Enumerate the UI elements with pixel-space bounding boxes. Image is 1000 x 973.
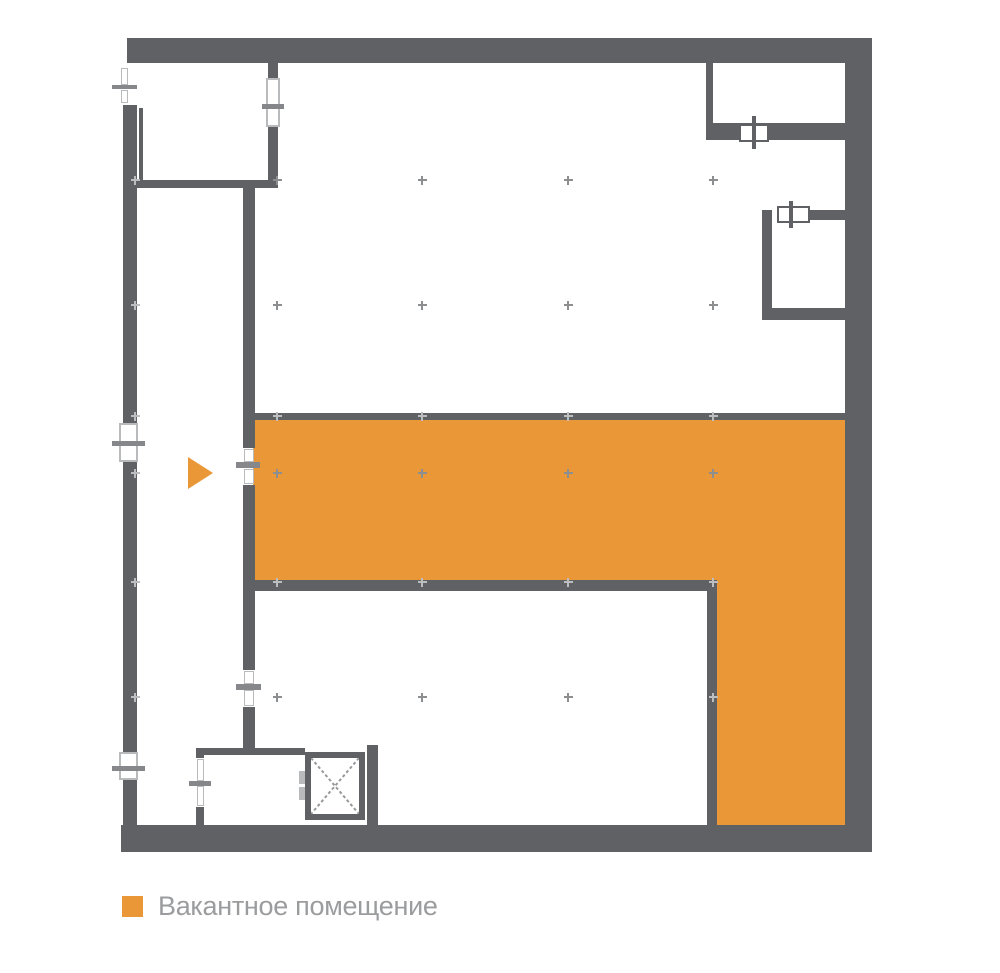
- grid-cross-marker: [564, 693, 573, 702]
- elevator-x-icon: [311, 758, 359, 814]
- grid-cross-marker: [709, 578, 718, 587]
- window-tick-room-bottom: [189, 781, 211, 786]
- door-symbol-interior-lower-b: [244, 690, 254, 706]
- door-tick-topright1: [752, 116, 756, 149]
- grid-cross-marker: [709, 693, 718, 702]
- room-topright2-left-wall: [762, 210, 772, 320]
- grid-cross-marker: [418, 412, 427, 421]
- vacant-area-leg[interactable]: [717, 580, 845, 825]
- grid-cross-marker: [418, 301, 427, 310]
- elevator-shaft: [305, 752, 365, 820]
- grid-cross-marker: [418, 469, 427, 478]
- door-symbol-topright2: [777, 206, 810, 223]
- grid-cross-marker: [131, 176, 140, 185]
- elevator-door-tick-b: [299, 787, 305, 800]
- grid-cross-marker: [564, 176, 573, 185]
- door-tick-topright2: [789, 201, 793, 228]
- grid-cross-marker: [564, 578, 573, 587]
- grid-cross-marker: [709, 176, 718, 185]
- grid-cross-marker: [709, 301, 718, 310]
- elevator-door-tick-a: [299, 771, 305, 784]
- window-tick-left-bottom: [112, 766, 145, 771]
- interior-wall-middle: [243, 485, 255, 670]
- vacant-area-leg-border-left: [707, 580, 717, 825]
- interior-wall-lower: [243, 707, 255, 750]
- grid-cross-marker: [273, 578, 282, 587]
- vacant-area-band[interactable]: [253, 420, 845, 580]
- window-symbol-room-topleft: [266, 78, 280, 127]
- wall-right: [845, 38, 872, 852]
- room-bottom-top-wall: [196, 748, 305, 755]
- room-topleft-right-wall-lower: [268, 127, 278, 180]
- wall-left-upper: [123, 105, 137, 423]
- room-topleft-bottom-wall: [137, 180, 278, 188]
- legend-label-vacant: Вакантное помещение: [158, 891, 438, 922]
- wall-top: [127, 38, 872, 63]
- grid-cross-marker: [273, 412, 282, 421]
- wall-left-lower: [123, 780, 137, 825]
- grid-cross-marker: [273, 693, 282, 702]
- room-bottom-left-wall-lower: [196, 807, 204, 825]
- room-topleft-inner-wall: [139, 108, 143, 183]
- grid-cross-marker: [273, 301, 282, 310]
- door-tick-interior-upper: [236, 462, 260, 468]
- grid-cross-marker: [418, 176, 427, 185]
- window-tick-left-middle: [112, 441, 145, 446]
- window-symbol-room-bottom-b: [197, 786, 204, 806]
- vacant-area-border-top: [243, 413, 845, 420]
- room-topright2-bottom-wall: [762, 308, 845, 320]
- grid-cross-marker: [131, 469, 140, 478]
- door-tick-interior-lower: [236, 684, 261, 690]
- grid-cross-marker: [418, 578, 427, 587]
- room-topleft-right-wall-upper: [268, 63, 278, 78]
- floor-plan-page: Вакантное помещение: [0, 0, 1000, 973]
- room-topright2-top-wall: [810, 210, 845, 220]
- room-bottom-left-wall-upper: [196, 748, 204, 758]
- grid-cross-marker: [564, 412, 573, 421]
- legend-swatch-vacant: [122, 896, 143, 917]
- vacant-area-border-bottom: [243, 580, 717, 591]
- window-symbol-left-top-b: [121, 90, 128, 103]
- grid-cross-marker: [131, 412, 140, 421]
- wall-left-middle: [123, 462, 137, 752]
- wall-right-of-elevator: [367, 745, 378, 825]
- grid-cross-marker: [131, 578, 140, 587]
- grid-cross-marker: [709, 412, 718, 421]
- floor-plan: [0, 0, 1000, 880]
- grid-cross-marker: [131, 693, 140, 702]
- grid-cross-marker: [273, 469, 282, 478]
- grid-cross-marker: [131, 301, 140, 310]
- legend: Вакантное помещение: [122, 891, 438, 922]
- entrance-arrow-icon: [188, 457, 213, 489]
- door-symbol-interior-upper-a: [244, 449, 254, 462]
- room-topright1-bottom-wall: [706, 123, 845, 140]
- grid-cross-marker: [564, 469, 573, 478]
- window-tick-room-topleft: [262, 104, 284, 109]
- window-symbol-room-bottom-a: [197, 759, 204, 781]
- grid-cross-marker: [418, 693, 427, 702]
- grid-cross-marker: [273, 176, 282, 185]
- interior-wall-upper: [243, 183, 255, 448]
- grid-cross-marker: [709, 469, 718, 478]
- grid-cross-marker: [564, 301, 573, 310]
- window-tick-left-top: [112, 85, 137, 89]
- door-symbol-interior-lower-a: [244, 671, 254, 684]
- door-symbol-interior-upper-b: [244, 469, 254, 484]
- window-symbol-left-top-a: [121, 68, 128, 85]
- wall-bottom: [121, 825, 872, 852]
